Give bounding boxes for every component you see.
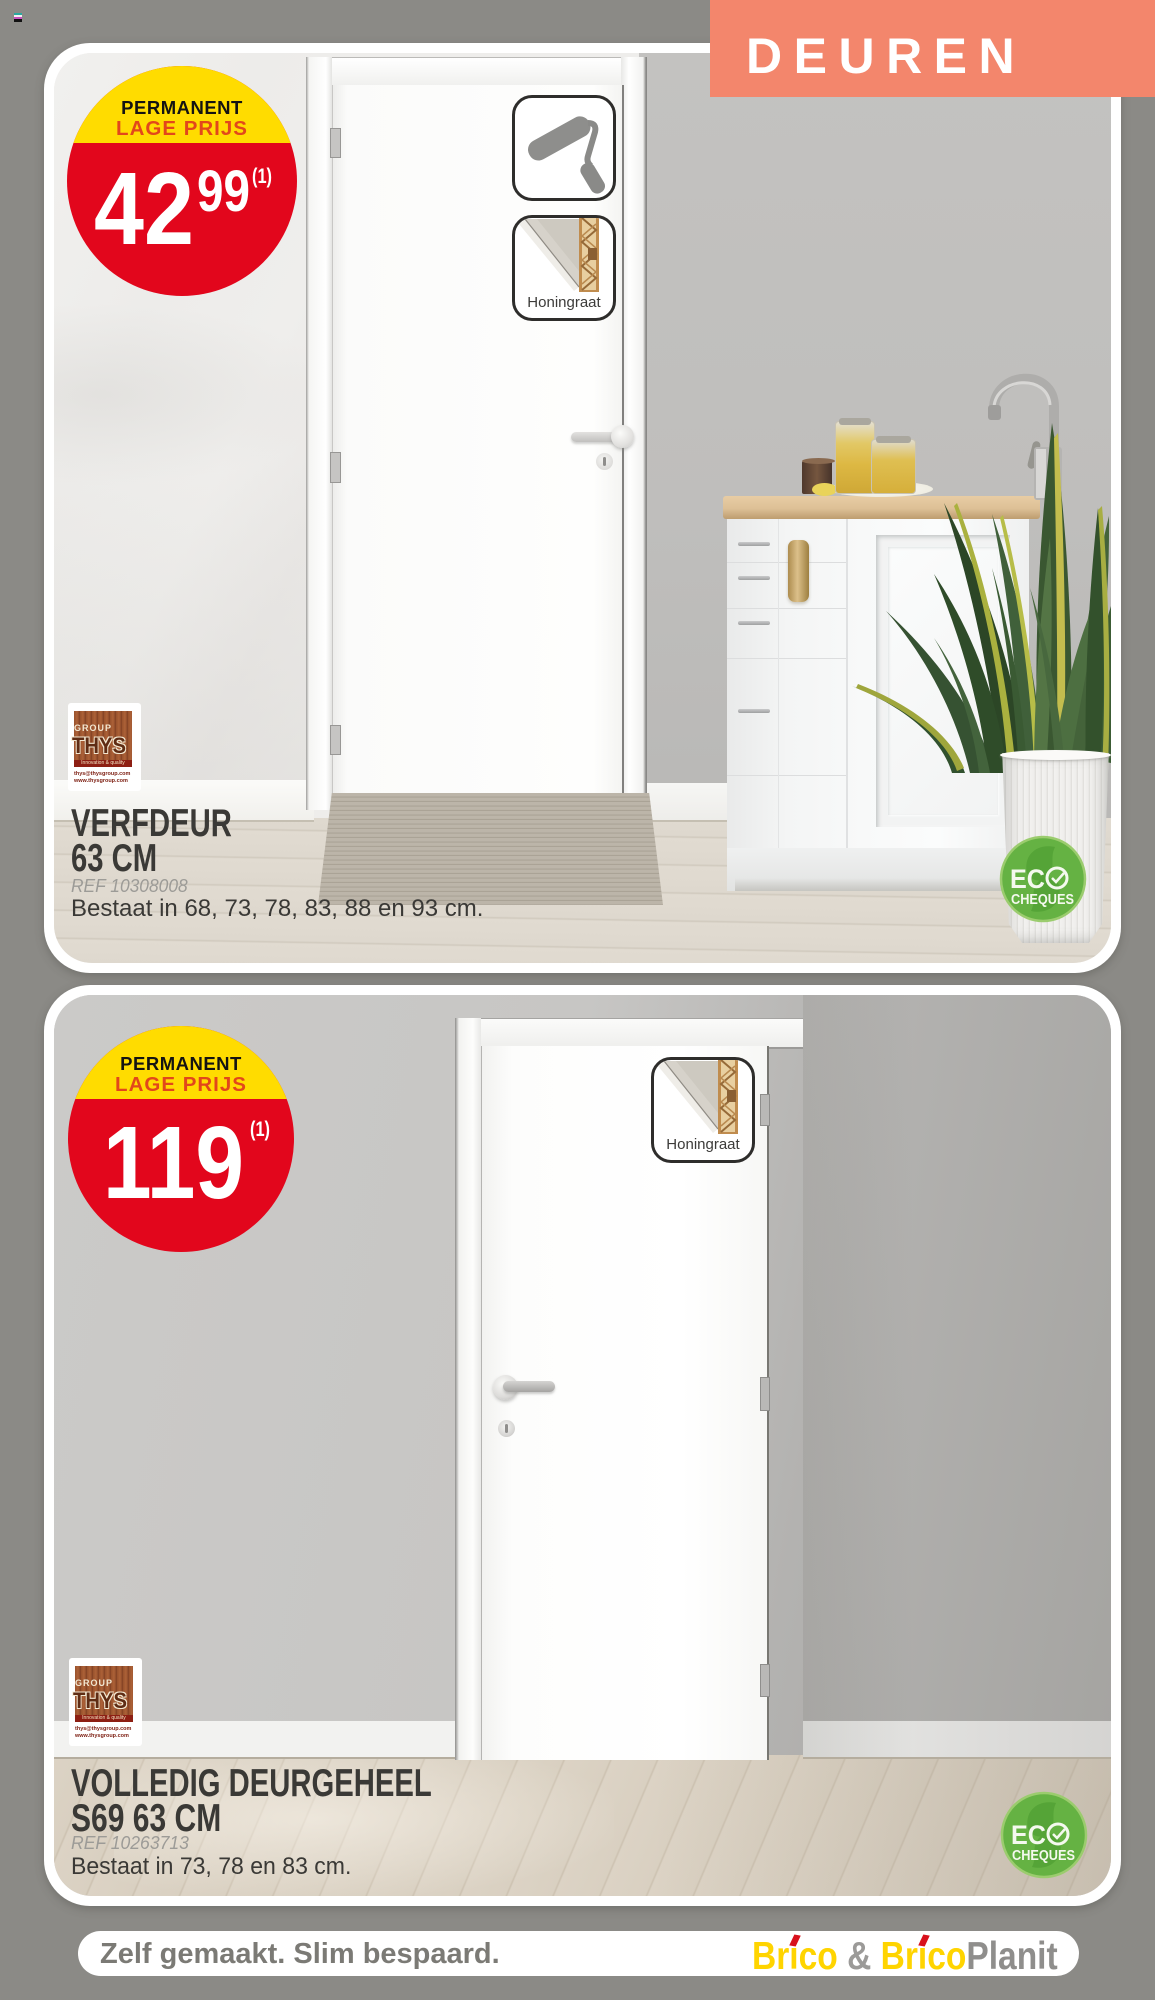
svg-text:(1): (1) (252, 165, 272, 188)
svg-text:42: 42 (94, 151, 194, 266)
svg-text:PERMANENT: PERMANENT (120, 1053, 242, 1074)
svg-text:LAGE PRIJS: LAGE PRIJS (115, 1073, 247, 1096)
svg-text:CHEQUES: CHEQUES (1012, 1848, 1075, 1864)
svg-text:99: 99 (197, 159, 250, 224)
svg-text:(1): (1) (250, 1118, 270, 1141)
svg-text:119: 119 (103, 1105, 244, 1220)
svg-text:LAGE PRIJS: LAGE PRIJS (116, 117, 248, 140)
svg-text:PERMANENT: PERMANENT (121, 97, 243, 118)
svg-text:CHEQUES: CHEQUES (1011, 892, 1074, 908)
svg-text:EC: EC (1010, 864, 1045, 894)
svg-text:EC: EC (1011, 1820, 1046, 1850)
